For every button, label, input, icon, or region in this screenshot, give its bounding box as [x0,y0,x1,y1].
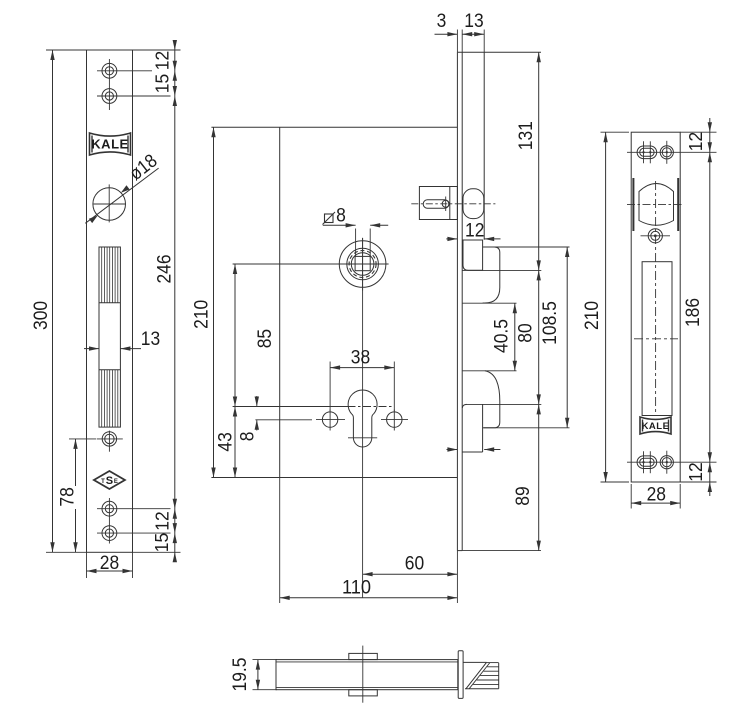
svg-text:186: 186 [683,298,704,327]
svg-text:12: 12 [686,462,706,481]
svg-text:300: 300 [31,301,52,330]
svg-text:12: 12 [153,51,173,70]
svg-text:80: 80 [516,323,537,342]
svg-text:15: 15 [152,533,172,552]
svg-text:40.5: 40.5 [491,319,512,353]
svg-text:210: 210 [582,301,603,330]
svg-text:8: 8 [238,432,259,442]
svg-text:210: 210 [192,300,213,329]
svg-text:89: 89 [513,486,534,505]
svg-text:43: 43 [216,432,237,451]
svg-text:KALE: KALE [91,137,128,152]
svg-text:KALE: KALE [642,421,670,432]
svg-text:13: 13 [464,11,483,32]
svg-text:15: 15 [153,74,173,93]
svg-text:28: 28 [100,553,119,574]
svg-text:38: 38 [351,348,370,369]
svg-text:12: 12 [465,221,484,242]
svg-text:S: S [106,475,113,487]
svg-text:T: T [101,479,105,485]
svg-text:110: 110 [342,578,371,599]
svg-text:85: 85 [255,329,276,348]
svg-text:131: 131 [516,121,537,150]
svg-text:60: 60 [405,553,424,574]
svg-text:13: 13 [141,329,160,350]
svg-text:3: 3 [437,11,447,32]
svg-text:19.5: 19.5 [230,658,251,692]
svg-text:12: 12 [153,511,173,530]
svg-text:246: 246 [155,254,176,283]
svg-text:E: E [114,479,118,485]
svg-text:8: 8 [336,206,346,227]
svg-text:78: 78 [57,487,78,506]
svg-text:28: 28 [647,484,666,505]
svg-text:12: 12 [686,132,706,151]
svg-text:108.5: 108.5 [540,301,561,345]
